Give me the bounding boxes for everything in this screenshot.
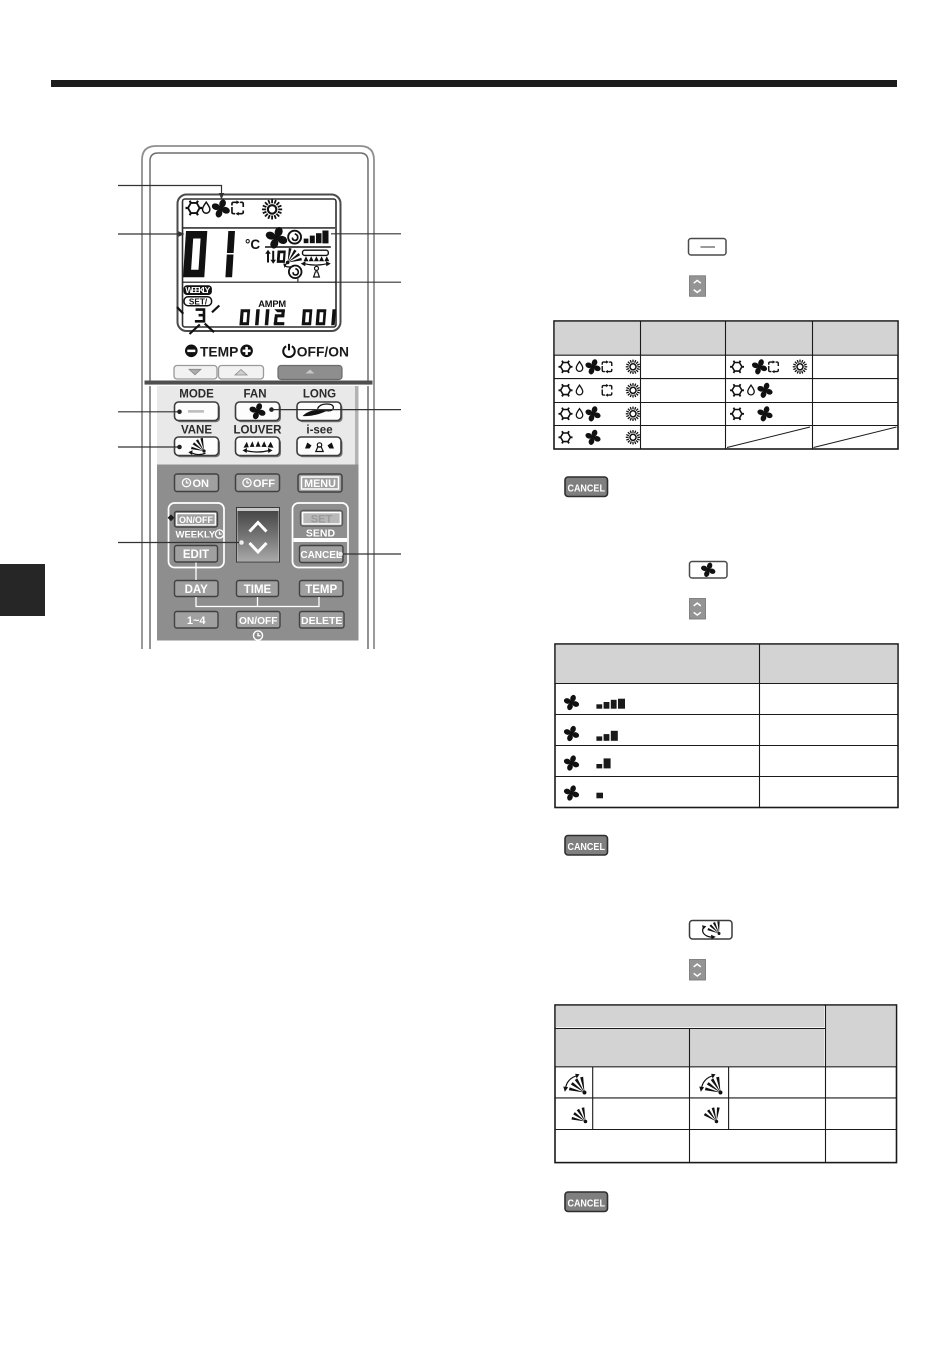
svg-text:SET/: SET/ — [189, 297, 208, 306]
svg-text:ON: ON — [193, 478, 210, 490]
svg-text:DAY: DAY — [185, 584, 209, 596]
svg-text:TIME: TIME — [244, 584, 272, 596]
svg-text:EDIT: EDIT — [183, 549, 209, 561]
svg-text:AMPM: AMPM — [258, 299, 286, 309]
svg-text:LOUVER: LOUVER — [234, 425, 283, 437]
svg-text:CANCEL: CANCEL — [300, 550, 342, 561]
svg-text:VANE: VANE — [181, 425, 212, 437]
svg-text:LONG: LONG — [303, 389, 336, 401]
svg-text:i-see: i-see — [306, 425, 332, 437]
svg-text:MENU: MENU — [304, 478, 336, 490]
svg-text:FAN: FAN — [244, 389, 267, 401]
svg-text:OFF/ON: OFF/ON — [297, 344, 349, 359]
svg-text:SET: SET — [311, 513, 333, 525]
svg-text:MODE: MODE — [179, 389, 214, 401]
svg-text:1~4: 1~4 — [187, 615, 207, 627]
svg-text:TEMP: TEMP — [200, 344, 238, 359]
svg-text:OFF: OFF — [253, 478, 275, 490]
svg-text:SEND: SEND — [306, 528, 336, 540]
svg-text:WEEKLY: WEEKLY — [185, 285, 210, 295]
svg-text:ON/OFF: ON/OFF — [179, 515, 213, 525]
svg-text:WEEKLY: WEEKLY — [176, 529, 216, 540]
svg-text:°C: °C — [245, 237, 260, 252]
svg-text:DELETE: DELETE — [301, 615, 342, 627]
svg-text:ON/OFF: ON/OFF — [239, 616, 277, 627]
svg-text:TEMP: TEMP — [305, 584, 337, 596]
